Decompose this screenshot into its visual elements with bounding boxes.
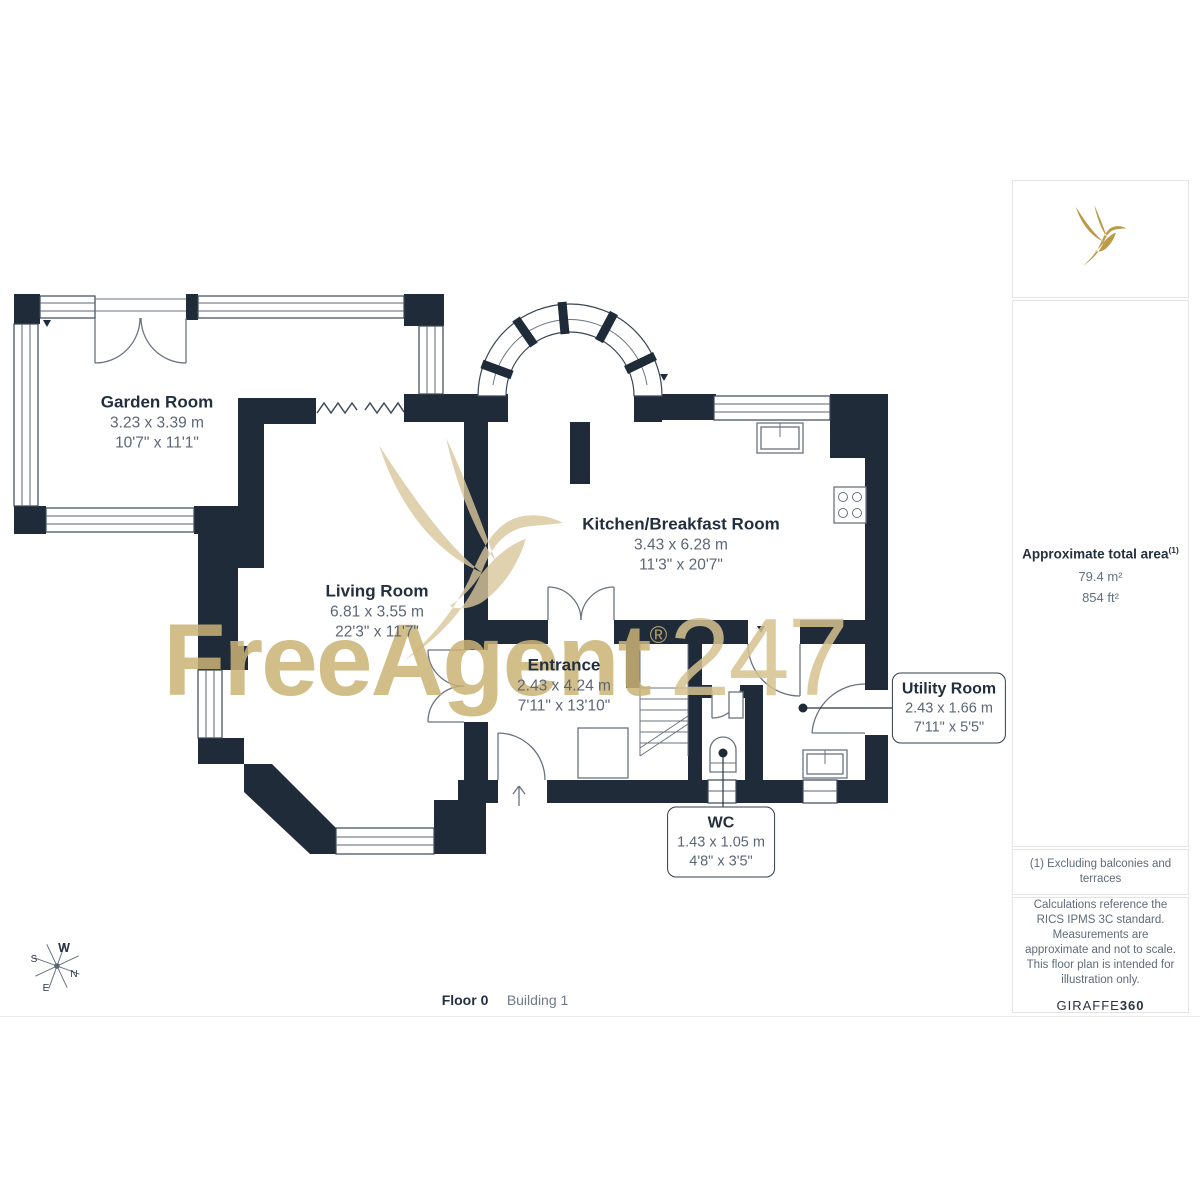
sidebar-area-panel: Approximate total area(1) 79.4 m² 854 ft… xyxy=(1012,300,1189,847)
room-label-living: Living Room 6.81 x 3.55 m 22'3" x 11'7" xyxy=(326,580,429,643)
area-footnote-marker: (1) xyxy=(1168,545,1178,555)
floor-label: Floor 0 xyxy=(442,992,489,1008)
room-label-entrance: Entrance 2.43 x 4.24 m 7'11" x 13'10" xyxy=(517,654,611,717)
utility-sink xyxy=(803,750,847,778)
room-label-kitchen: Kitchen/Breakfast Room 3.43 x 6.28 m 11'… xyxy=(582,513,779,576)
room-label-garden: Garden Room 3.23 x 3.39 m 10'7" x 11'1" xyxy=(101,391,213,454)
compass-rose: W S N E xyxy=(31,941,80,994)
arched-bay-window xyxy=(478,302,662,396)
sidebar-logo-panel xyxy=(1012,180,1189,298)
floor-indicator: Floor 0 Building 1 xyxy=(0,992,1010,1010)
floorplan-page: W S N E FreeAgent®247 Garden Room 3.23 x… xyxy=(0,0,1200,1200)
footnote-text: (1) Excluding balconies and terraces xyxy=(1025,857,1176,887)
wc-basin xyxy=(729,692,743,718)
wall-opening-zigzag xyxy=(317,403,404,413)
floor-plan: W S N E FreeAgent®247 Garden Room 3.23 x… xyxy=(0,0,1010,1020)
giraffe360-wordmark: GIRAFFE360 xyxy=(1056,998,1144,1013)
hob xyxy=(834,487,866,523)
total-area-ft2: 854 ft² xyxy=(1082,587,1119,608)
entrance-arrow-icon xyxy=(513,786,525,806)
compass-west: W xyxy=(58,941,70,955)
total-area-m2: 79.4 m² xyxy=(1078,566,1122,587)
callout-wc: WC 1.43 x 1.05 m 4'8" x 3'5" xyxy=(667,807,775,878)
giraffe360-bird-icon xyxy=(1072,205,1130,273)
disclaimer-text: Calculations reference the RICS IPMS 3C … xyxy=(1024,898,1177,988)
bottom-divider xyxy=(0,1016,1200,1017)
building-label: Building 1 xyxy=(507,992,569,1008)
sidebar-disclaimer-panel: Calculations reference the RICS IPMS 3C … xyxy=(1012,897,1189,1013)
callout-utility: Utility Room 2.43 x 1.66 m 7'11" x 5'5" xyxy=(892,673,1006,744)
compass-south: S xyxy=(31,954,38,965)
compass-north: N xyxy=(70,969,77,980)
kitchen-sink xyxy=(757,423,803,453)
sidebar-footnote-panel: (1) Excluding balconies and terraces xyxy=(1012,849,1189,895)
total-area-title: Approximate total area(1) xyxy=(1022,539,1179,566)
